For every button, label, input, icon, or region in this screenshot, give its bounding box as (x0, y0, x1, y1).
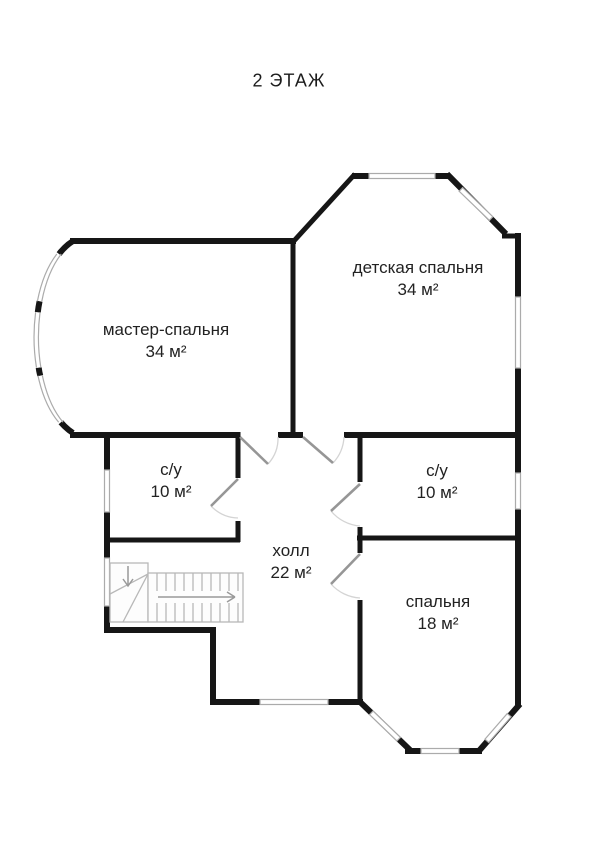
window-right-bathroom (516, 473, 521, 509)
door-arc-master (268, 437, 278, 464)
room-name: холл (271, 540, 312, 562)
room-name: мастер-спальня (103, 319, 229, 341)
window-bay-bottom (421, 749, 459, 754)
stairs-landing (110, 563, 148, 622)
door-leaf-bath-right (331, 484, 360, 511)
room-area: 34 м² (353, 279, 484, 301)
window-left-stairs (105, 558, 110, 606)
room-label-bath-right: с/у 10 м² (417, 460, 458, 504)
room-name: с/у (151, 459, 192, 481)
window-hall-bottom (260, 700, 328, 705)
floorplan-page: 2 ЭТАЖ (0, 0, 601, 850)
window-left-bathroom (105, 470, 110, 512)
door-arc-bedroom (331, 584, 360, 598)
floorplan-drawing (0, 0, 601, 850)
window-childrens-top (369, 174, 435, 179)
room-name: спальня (406, 591, 471, 613)
room-label-childrens: детская спальня 34 м² (353, 257, 484, 301)
room-area: 10 м² (151, 481, 192, 503)
room-name: детская спальня (353, 257, 484, 279)
door-leaf-bedroom (331, 554, 360, 584)
window-bay-left (370, 711, 401, 741)
door-leaf-master (240, 437, 268, 464)
room-name: с/у (417, 460, 458, 482)
door-leaf-bath-left (211, 479, 238, 506)
room-area: 22 м² (271, 562, 312, 584)
wall-master-bow (36, 241, 73, 433)
window-childrens-angle (459, 188, 493, 221)
room-area: 34 м² (103, 341, 229, 363)
room-label-master: мастер-спальня 34 м² (103, 319, 229, 363)
window-bow-erase (36, 241, 73, 433)
room-area: 18 м² (406, 613, 471, 635)
wall-bedroom-divider (293, 174, 355, 438)
room-area: 10 м² (417, 482, 458, 504)
room-label-bedroom: спальня 18 м² (406, 591, 471, 635)
staircase (110, 563, 243, 622)
window-right-childrens (516, 297, 521, 368)
window-bow-glass-inner (38, 241, 75, 433)
door-arc-bath-right (331, 511, 360, 526)
door-arc-bath-left (211, 506, 238, 518)
room-label-bath-left: с/у 10 м² (151, 459, 192, 503)
room-label-hall: холл 22 м² (271, 540, 312, 584)
door-arc-childrens (333, 437, 344, 463)
door-leaf-childrens (303, 437, 333, 463)
window-bay-right (485, 714, 511, 743)
